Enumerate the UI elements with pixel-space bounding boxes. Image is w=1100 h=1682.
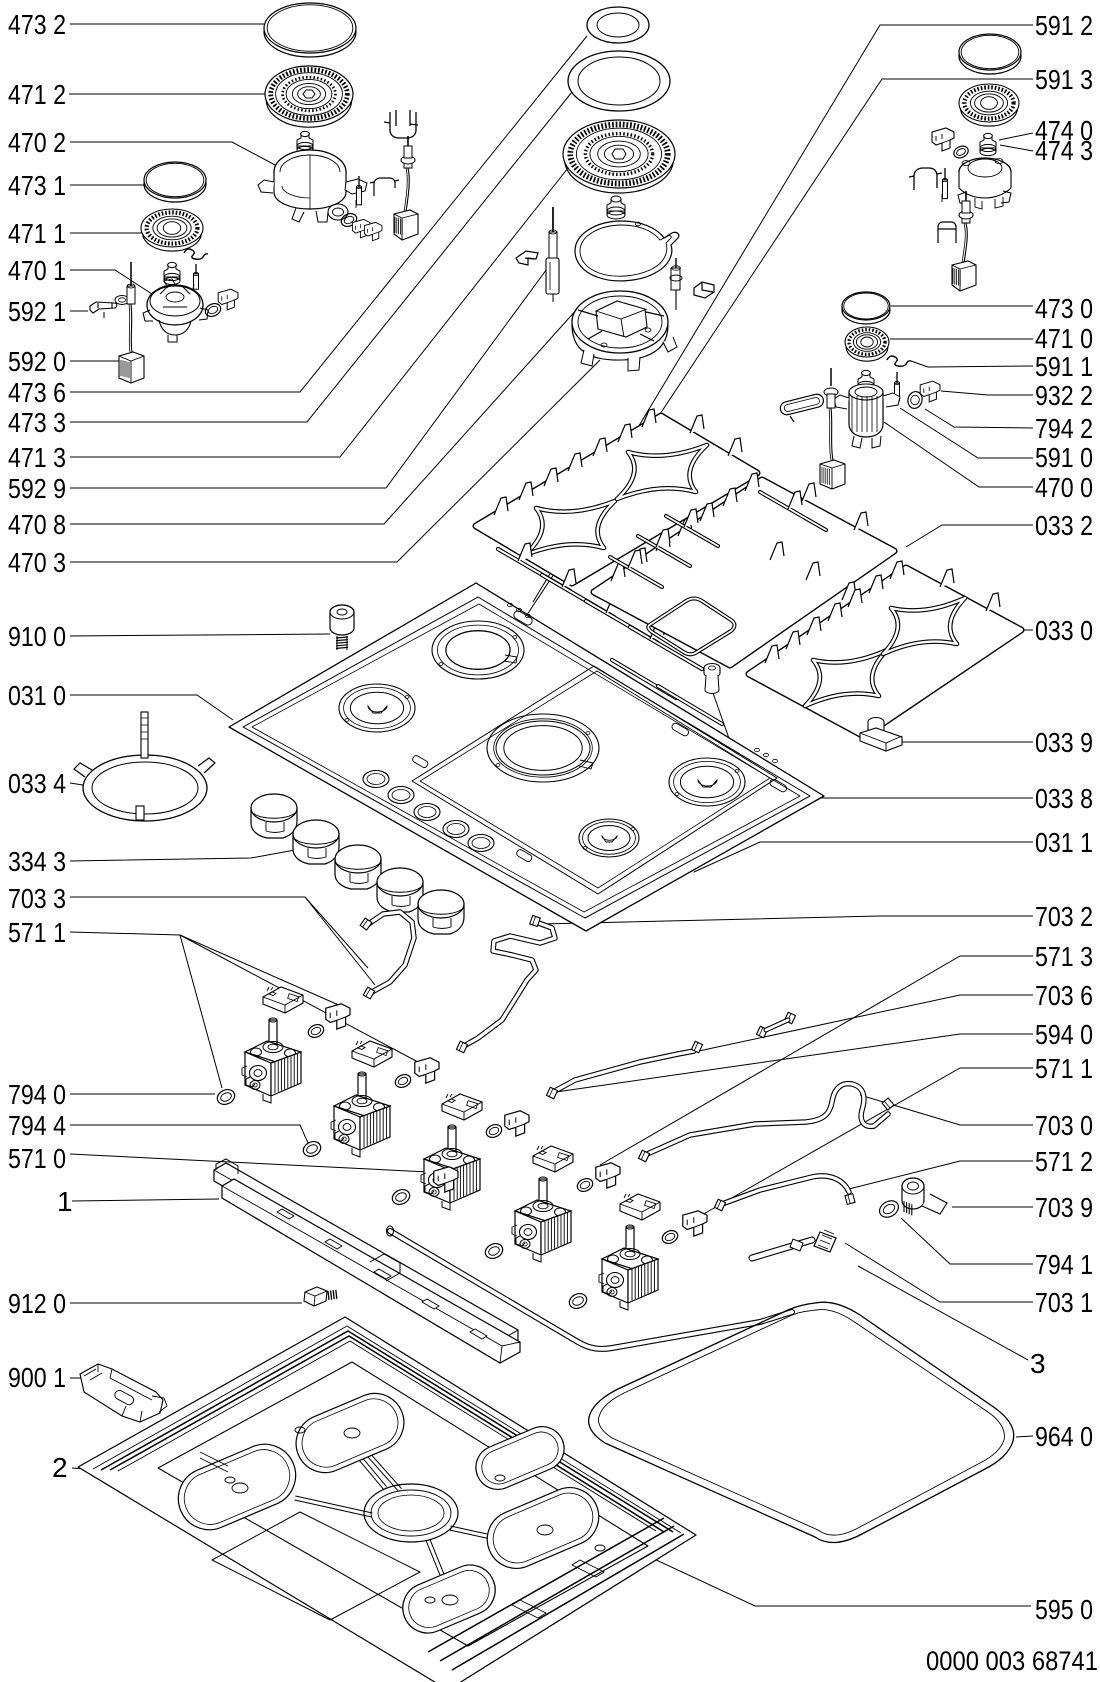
svg-text:473 3: 473 3 xyxy=(8,407,66,438)
svg-text:571 0: 571 0 xyxy=(8,1143,66,1174)
svg-text:592 1: 592 1 xyxy=(8,296,66,327)
svg-text:033 2: 033 2 xyxy=(1035,510,1093,541)
svg-text:474 3: 474 3 xyxy=(1035,135,1093,166)
svg-text:794 2: 794 2 xyxy=(1035,413,1093,444)
svg-text:794 4: 794 4 xyxy=(8,1110,66,1141)
svg-text:794 0: 794 0 xyxy=(8,1079,66,1110)
svg-text:033 0: 033 0 xyxy=(1035,615,1093,646)
svg-text:334 3: 334 3 xyxy=(8,846,66,877)
svg-text:470 3: 470 3 xyxy=(8,547,66,578)
svg-text:591 0: 591 0 xyxy=(1035,442,1093,473)
svg-text:473 2: 473 2 xyxy=(8,9,66,40)
svg-text:571 1: 571 1 xyxy=(1035,1053,1093,1084)
svg-text:033 4: 033 4 xyxy=(8,768,66,799)
svg-text:033 9: 033 9 xyxy=(1035,727,1093,758)
svg-text:471 1: 471 1 xyxy=(8,218,66,249)
svg-text:703 1: 703 1 xyxy=(1035,1287,1093,1318)
svg-text:471 0: 471 0 xyxy=(1035,323,1093,354)
svg-text:571 2: 571 2 xyxy=(1035,1146,1093,1177)
svg-text:912 0: 912 0 xyxy=(8,1288,66,1319)
svg-text:703 6: 703 6 xyxy=(1035,980,1093,1011)
svg-text:3: 3 xyxy=(1030,1348,1046,1379)
svg-text:594 0: 594 0 xyxy=(1035,1019,1093,1050)
svg-text:591 3: 591 3 xyxy=(1035,64,1093,95)
svg-text:910 0: 910 0 xyxy=(8,621,66,652)
svg-text:470 8: 470 8 xyxy=(8,509,66,540)
svg-text:2: 2 xyxy=(52,1452,68,1483)
svg-text:031 1: 031 1 xyxy=(1035,827,1093,858)
svg-text:571 3: 571 3 xyxy=(1035,941,1093,972)
svg-text:703 9: 703 9 xyxy=(1035,1192,1093,1223)
svg-text:1: 1 xyxy=(57,1186,73,1217)
svg-text:473 0: 473 0 xyxy=(1035,293,1093,324)
svg-text:591 1: 591 1 xyxy=(1035,351,1093,382)
svg-text:031 0: 031 0 xyxy=(8,680,66,711)
svg-text:470 1: 470 1 xyxy=(8,255,66,286)
svg-text:794 1: 794 1 xyxy=(1035,1249,1093,1280)
svg-text:595 0: 595 0 xyxy=(1035,1594,1093,1625)
svg-text:703 3: 703 3 xyxy=(8,883,66,914)
svg-text:473 1: 473 1 xyxy=(8,170,66,201)
svg-text:470 2: 470 2 xyxy=(8,127,66,158)
svg-text:964 0: 964 0 xyxy=(1035,1421,1093,1452)
svg-text:470 0: 470 0 xyxy=(1035,472,1093,503)
svg-text:571 1: 571 1 xyxy=(8,917,66,948)
svg-text:592 9: 592 9 xyxy=(8,473,66,504)
svg-text:473 6: 473 6 xyxy=(8,377,66,408)
svg-text:932 2: 932 2 xyxy=(1035,380,1093,411)
svg-text:900 1: 900 1 xyxy=(8,1362,66,1393)
svg-text:033 8: 033 8 xyxy=(1035,783,1093,814)
svg-text:703 2: 703 2 xyxy=(1035,901,1093,932)
svg-text:591 2: 591 2 xyxy=(1035,10,1093,41)
svg-text:471 3: 471 3 xyxy=(8,442,66,473)
svg-text:703 0: 703 0 xyxy=(1035,1110,1093,1141)
svg-text:471 2: 471 2 xyxy=(8,79,66,110)
svg-text:592 0: 592 0 xyxy=(8,346,66,377)
svg-text:0000 003 68741: 0000 003 68741 xyxy=(926,1646,1098,1676)
